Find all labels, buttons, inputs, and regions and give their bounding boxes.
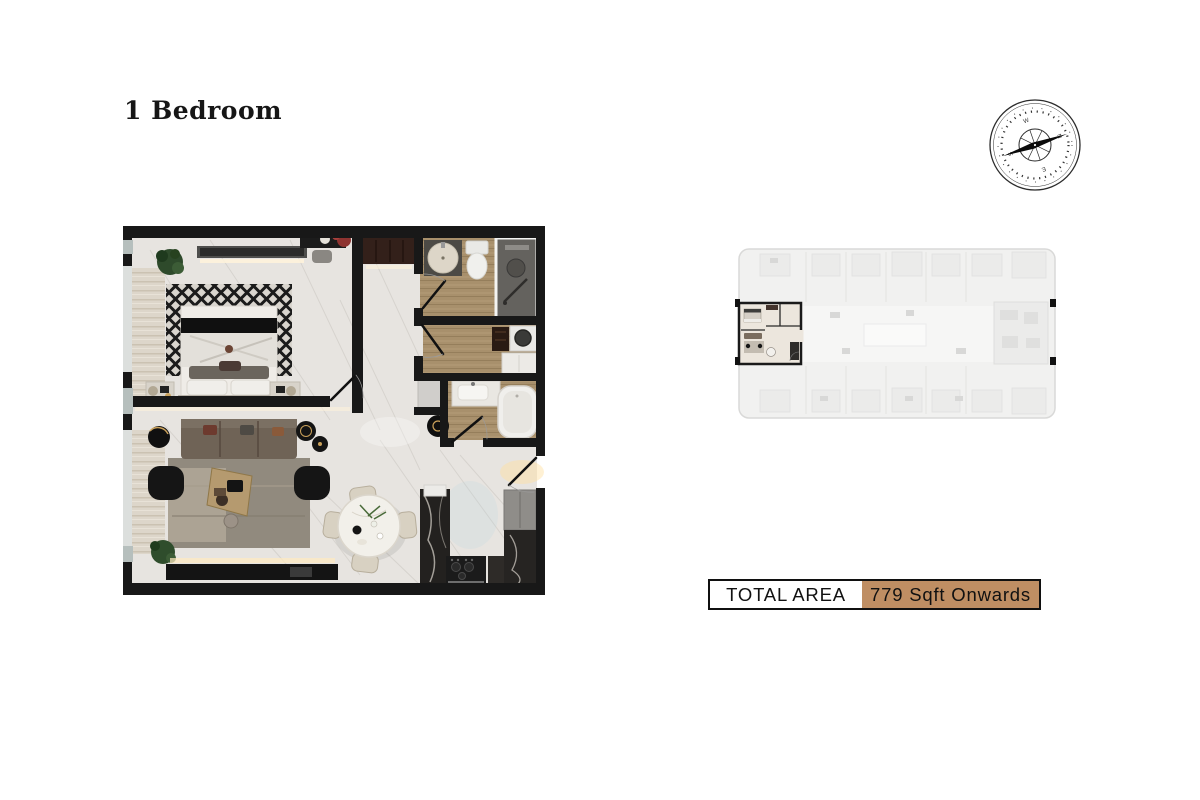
- total-area-label: TOTAL AREA: [710, 581, 862, 608]
- washer: [510, 326, 537, 351]
- compass-letter-e: E: [1041, 165, 1047, 172]
- media-glow: [170, 558, 335, 563]
- kitchen-island: [420, 485, 450, 585]
- bedroom-curtain: [132, 268, 165, 396]
- sofa: [181, 419, 297, 459]
- bathtub: [498, 386, 537, 438]
- kitchen-counter: [504, 530, 537, 585]
- windows: [123, 240, 133, 562]
- toilet: [466, 241, 488, 279]
- compass-rose: N E S W: [988, 98, 1082, 192]
- walk-in-shower: [496, 238, 537, 318]
- shelf: [492, 327, 509, 351]
- compass-letter-w: W: [1023, 118, 1031, 126]
- bed: [178, 306, 280, 401]
- basin-counter: [424, 240, 462, 276]
- kitchen: [420, 481, 537, 585]
- armchair-right: [294, 466, 330, 500]
- console-glow: [200, 259, 304, 263]
- floor-plan: [123, 224, 545, 595]
- total-area-value: 779 Sqft Onwards: [862, 581, 1039, 608]
- brochure-page: 1 Bedroom N E S W: [0, 0, 1200, 800]
- stove: [446, 556, 486, 584]
- sink-counter: [452, 381, 500, 406]
- key-plan: [735, 245, 1059, 422]
- page-title: 1 Bedroom: [124, 96, 282, 125]
- cabinet: [502, 353, 537, 374]
- dining-table: [338, 495, 400, 557]
- total-area-bar: TOTAL AREA 779 Sqft Onwards: [708, 579, 1041, 610]
- media-console: [166, 564, 338, 580]
- armchair-left: [148, 466, 184, 500]
- wardrobe: [363, 238, 414, 264]
- fridge-cabinet: [504, 490, 536, 530]
